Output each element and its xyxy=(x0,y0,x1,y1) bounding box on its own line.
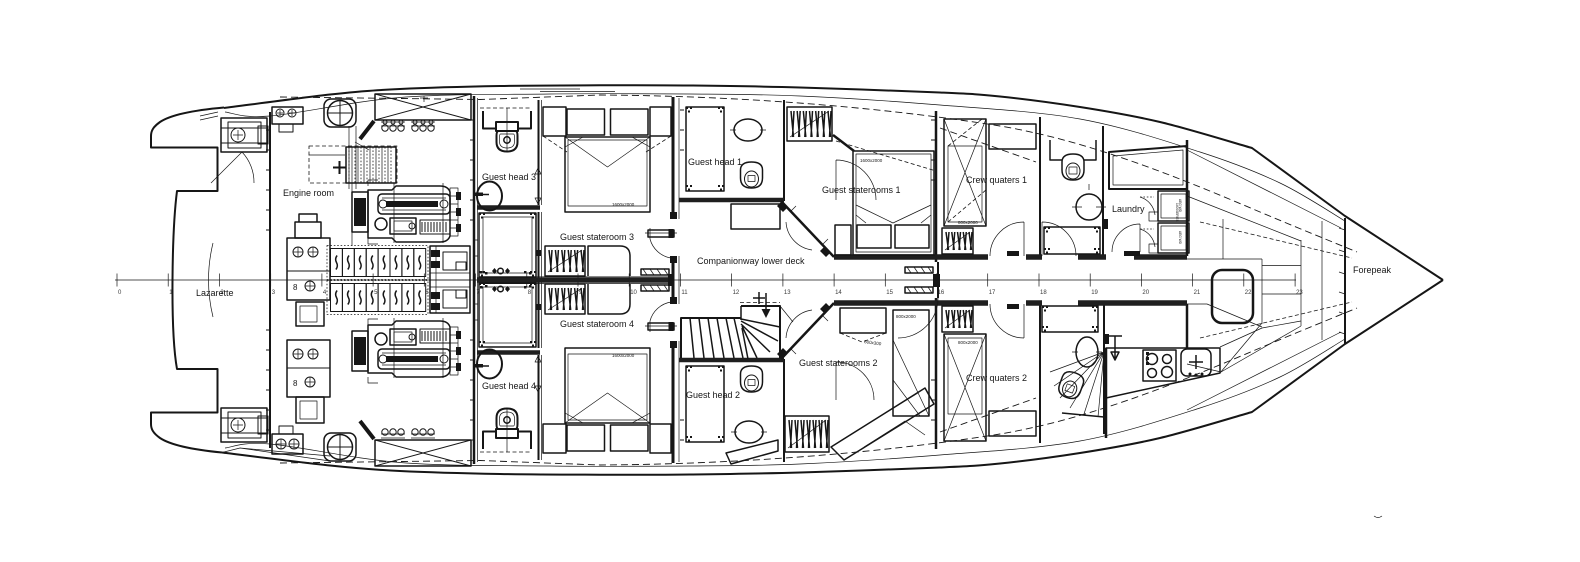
svg-text:Engine room: Engine room xyxy=(283,188,334,198)
svg-text:Guest head 4: Guest head 4 xyxy=(482,381,536,391)
svg-text:8: 8 xyxy=(528,290,532,296)
svg-text:Crew quaters 2: Crew quaters 2 xyxy=(966,373,1027,383)
svg-text:Lazarette: Lazarette xyxy=(196,288,234,298)
svg-text:800x300: 800x300 xyxy=(864,339,882,346)
svg-text:5: 5 xyxy=(374,290,378,296)
svg-text:Guest stateroom 4: Guest stateroom 4 xyxy=(560,319,634,329)
svg-text:Guest head 1: Guest head 1 xyxy=(688,157,742,167)
svg-text:13: 13 xyxy=(784,290,791,296)
svg-text:Companionway lower deck: Companionway lower deck xyxy=(697,256,805,266)
svg-text:1600x2000: 1600x2000 xyxy=(612,353,635,358)
svg-text:1600x2000: 1600x2000 xyxy=(612,202,635,207)
svg-text:18: 18 xyxy=(1040,290,1047,296)
svg-text:Crew quaters 1: Crew quaters 1 xyxy=(966,175,1027,185)
svg-text:Guest head 2: Guest head 2 xyxy=(686,390,740,400)
svg-text:15: 15 xyxy=(886,290,893,296)
svg-text:Guest head 3: Guest head 3 xyxy=(482,172,536,182)
svg-text:1600x2000: 1600x2000 xyxy=(860,158,883,163)
svg-text:10: 10 xyxy=(630,290,637,296)
svg-text:Laundry: Laundry xyxy=(1112,204,1145,214)
svg-text:19: 19 xyxy=(1091,290,1098,296)
svg-text:Guest staterooms 1: Guest staterooms 1 xyxy=(822,185,901,195)
svg-text:Guest stateroom 3: Guest stateroom 3 xyxy=(560,232,634,242)
svg-text:20: 20 xyxy=(1142,290,1149,296)
svg-text:22: 22 xyxy=(1245,290,1252,296)
svg-text:11: 11 xyxy=(681,290,688,296)
svg-text:AEG WD: AEG WD xyxy=(1178,231,1182,245)
svg-text:3: 3 xyxy=(272,290,276,296)
svg-text:12: 12 xyxy=(733,290,740,296)
svg-text:14: 14 xyxy=(835,290,842,296)
svg-text:8: 8 xyxy=(293,283,298,292)
svg-text:8: 8 xyxy=(293,379,298,388)
svg-text:800x2000: 800x2000 xyxy=(958,340,978,345)
svg-text:Forepeak: Forepeak xyxy=(1353,265,1392,275)
svg-text:0: 0 xyxy=(118,290,122,296)
svg-text:800x2000: 800x2000 xyxy=(896,314,916,319)
svg-text:21: 21 xyxy=(1194,290,1201,296)
svg-text:17: 17 xyxy=(989,290,996,296)
svg-text:4: 4 xyxy=(323,290,327,296)
svg-text:23: 23 xyxy=(1296,290,1303,296)
svg-text:1400SERIES: 1400SERIES xyxy=(1175,203,1179,222)
svg-text:800x2000: 800x2000 xyxy=(958,220,978,225)
svg-text:Guest staterooms 2: Guest staterooms 2 xyxy=(799,358,878,368)
